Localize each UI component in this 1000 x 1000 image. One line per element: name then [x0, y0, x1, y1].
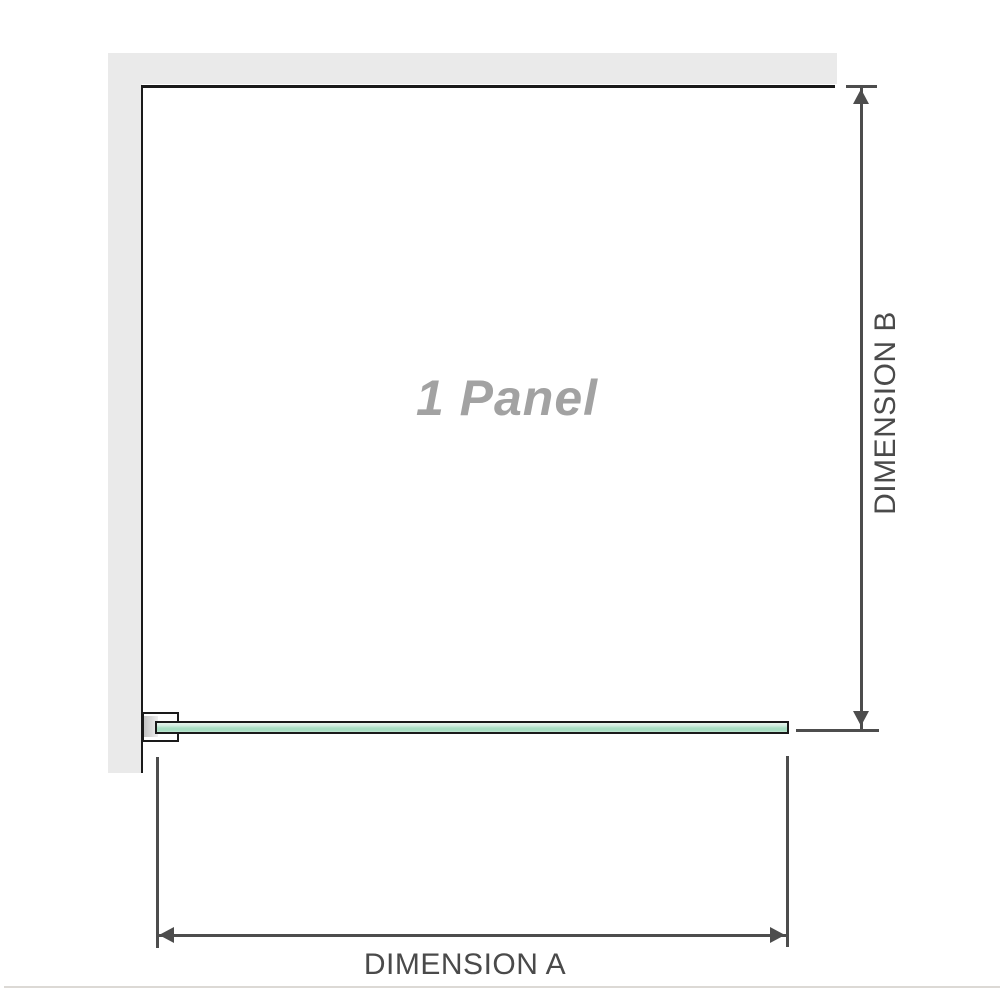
panel-dimension-diagram: 1 Panel DIMENSION B DIMENSION A: [0, 0, 1000, 1000]
bottom-separator: [4, 986, 1000, 988]
dim-a-right-extension-line: [786, 756, 789, 947]
dim-a-line: [158, 934, 786, 937]
glass-panel: [155, 721, 789, 734]
dim-a-left-extension-line: [156, 757, 159, 948]
dimension-a-label: DIMENSION A: [265, 948, 665, 982]
enclosure-left-edge: [141, 85, 144, 773]
dim-b-arrow-up-icon: [853, 89, 869, 104]
dim-a-arrow-left-icon: [159, 927, 174, 943]
dim-b-bottom-tick: [796, 729, 879, 732]
wall-top-bar: [108, 53, 837, 84]
dim-b-arrow-down-icon: [853, 711, 869, 726]
panel-count-label: 1 Panel: [377, 368, 637, 428]
dimension-b-label: DIMENSION B: [869, 311, 903, 515]
wall-left-bar: [108, 53, 142, 773]
enclosure-top-edge: [141, 85, 835, 88]
dim-b-line: [860, 88, 863, 730]
dim-a-arrow-right-icon: [770, 927, 785, 943]
